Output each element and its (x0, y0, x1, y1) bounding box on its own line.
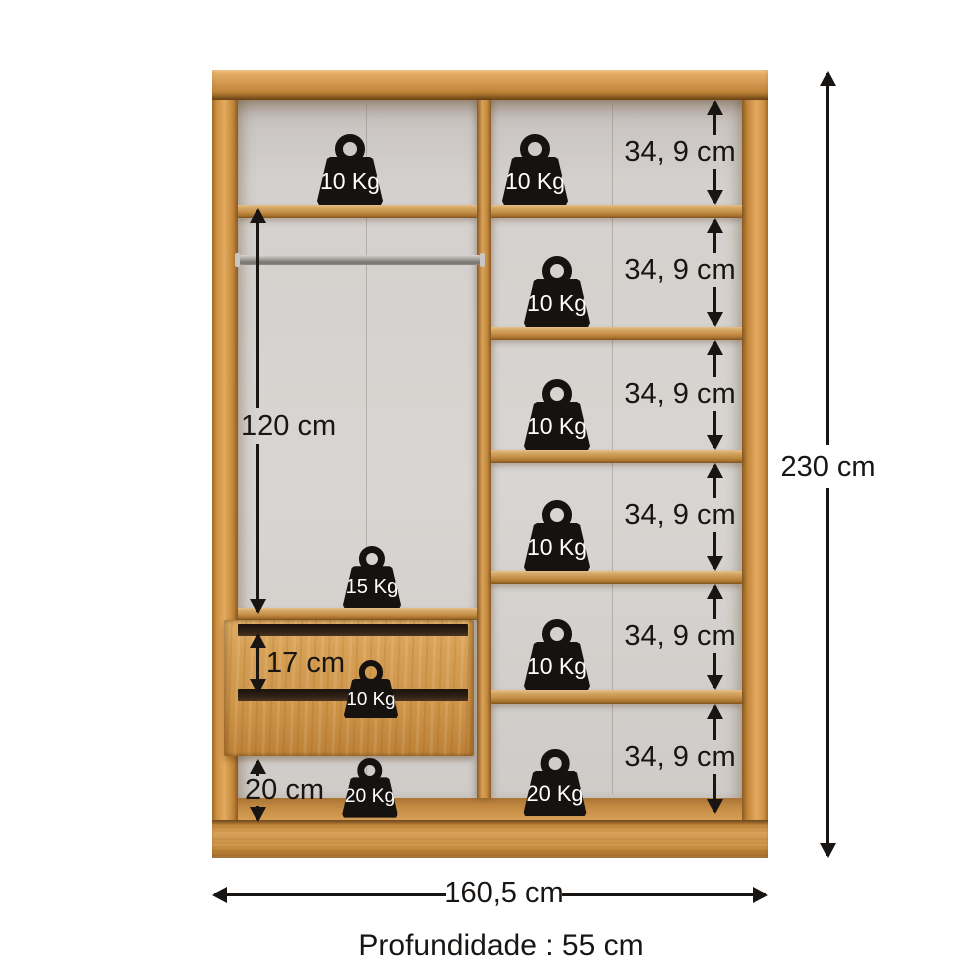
cabinet-top-panel (212, 70, 768, 100)
shelf-2-dimension-arrow-top (713, 220, 716, 253)
weight-label: 10 Kg (527, 653, 587, 680)
shelf-5-dimension-arrow-bottom (713, 653, 716, 688)
depth-label: Profundidade : 55 cm (358, 929, 643, 963)
total-width-label: 160,5 cm (444, 877, 563, 909)
right-shelf-5 (491, 690, 742, 704)
weight-icon-shelf-6: 20 Kg (524, 749, 587, 816)
weight-label: 10 Kg (527, 534, 587, 561)
weight-label: 20 Kg (526, 781, 583, 807)
kettlebell-body: 20 Kg (342, 777, 397, 817)
weight-icon-bottom-left: 20 Kg (342, 758, 397, 818)
wardrobe-dimension-diagram: 10 Kg 10 Kg 10 Kg 10 Kg 10 Kg 10 Kg 20 K… (0, 0, 980, 980)
weight-icon-top-left: 10 Kg (317, 134, 383, 205)
total-height-label: 230 cm (780, 451, 875, 483)
kettlebell-body: 10 Kg (344, 679, 398, 718)
weight-label: 10 Kg (320, 168, 380, 195)
hanging-height-arrow-bottom (256, 444, 259, 612)
hanging-height-label: 120 cm (241, 410, 336, 442)
weight-label: 10 Kg (527, 290, 587, 317)
shelf-6-dimension-arrow-bottom (713, 774, 716, 812)
kettlebell-body: 15 Kg (343, 566, 401, 608)
weight-label: 20 Kg (345, 786, 395, 808)
shelf-4-dimension-arrow-top (713, 465, 716, 498)
drawer-gap-top (238, 624, 468, 636)
total-width-arrow-right (562, 893, 766, 896)
kettlebell-body: 20 Kg (524, 771, 587, 817)
shelf-4-dimension-arrow-bottom (713, 532, 716, 569)
weight-label: 10 Kg (346, 688, 395, 710)
cabinet-base-plinth (212, 820, 768, 858)
weight-icon-shelf-5: 10 Kg (524, 619, 590, 690)
weight-label: 15 Kg (346, 576, 399, 599)
hanging-rod (237, 255, 483, 265)
shelf-1-dimension-arrow-top (713, 102, 716, 135)
kettlebell-body: 10 Kg (524, 402, 590, 450)
weight-icon-shelf-1: 10 Kg (502, 134, 568, 205)
shelf-6-size-label: 34, 9 cm (624, 741, 735, 773)
weight-icon-drawer: 10 Kg (344, 660, 398, 718)
shelf-3-size-label: 34, 9 cm (624, 378, 735, 410)
weight-icon-shelf-4: 10 Kg (524, 500, 590, 571)
shelf-2-size-label: 34, 9 cm (624, 254, 735, 286)
shelf-1-size-label: 34, 9 cm (624, 136, 735, 168)
kettlebell-body: 10 Kg (502, 157, 568, 205)
drawer-top-shelf (238, 608, 477, 620)
right-shelf-4 (491, 571, 742, 584)
weight-icon-hanging-area: 15 Kg (343, 546, 401, 608)
left-top-shelf (238, 205, 477, 218)
bottom-height-arrow-bottom (256, 806, 259, 820)
shelf-1-dimension-arrow-bottom (713, 169, 716, 203)
drawer-height-arrow (256, 635, 259, 692)
kettlebell-body: 10 Kg (524, 642, 590, 690)
cabinet-right-panel (742, 100, 768, 820)
bottom-height-label: 20 cm (245, 774, 324, 806)
weight-label: 10 Kg (527, 413, 587, 440)
total-height-arrow-top (826, 73, 829, 445)
right-shelf-2 (491, 327, 742, 340)
weight-label: 10 Kg (505, 168, 565, 195)
shelf-5-dimension-arrow-top (713, 586, 716, 619)
kettlebell-body: 10 Kg (524, 279, 590, 327)
drawer-height-label: 17 cm (266, 647, 345, 679)
shelf-2-dimension-arrow-bottom (713, 287, 716, 325)
weight-icon-shelf-2: 10 Kg (524, 256, 590, 327)
center-divider-panel (477, 100, 491, 798)
shelf-3-dimension-arrow-bottom (713, 411, 716, 448)
total-width-arrow-left (214, 893, 446, 896)
shelf-6-dimension-arrow-top (713, 706, 716, 740)
shelf-5-size-label: 34, 9 cm (624, 620, 735, 652)
right-shelf-1 (491, 205, 742, 218)
shelf-4-size-label: 34, 9 cm (624, 499, 735, 531)
kettlebell-body: 10 Kg (524, 523, 590, 571)
shelf-3-dimension-arrow-top (713, 342, 716, 377)
kettlebell-body: 10 Kg (317, 157, 383, 205)
hanging-height-arrow-top (256, 210, 259, 408)
total-height-arrow-bottom (826, 488, 829, 856)
weight-icon-shelf-3: 10 Kg (524, 379, 590, 450)
right-shelf-3 (491, 450, 742, 463)
